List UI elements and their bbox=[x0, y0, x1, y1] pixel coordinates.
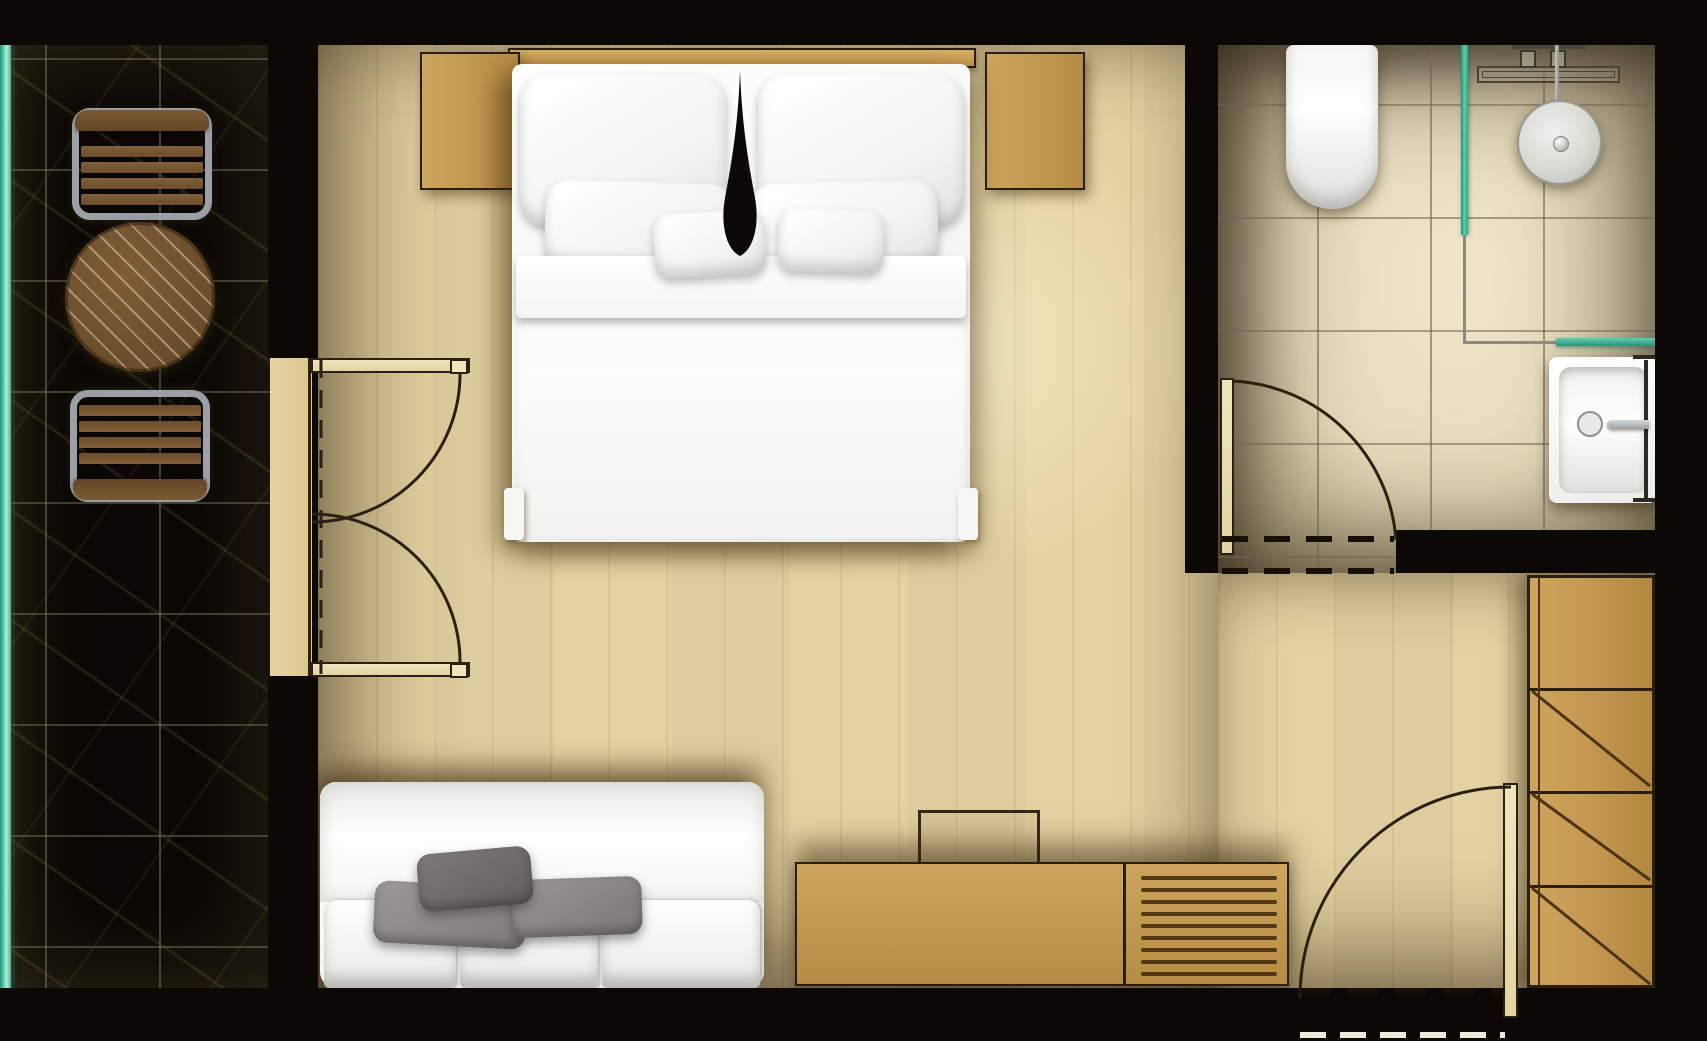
sink-mount-line bbox=[1644, 360, 1648, 500]
shower-arm bbox=[1555, 45, 1559, 105]
door-hinge bbox=[450, 359, 468, 374]
nightstand-left bbox=[420, 52, 520, 190]
console-drawer-slat bbox=[1141, 876, 1277, 880]
console-drawer-slat bbox=[1141, 936, 1277, 940]
shower-linear-drain bbox=[1477, 66, 1620, 83]
shower-valve bbox=[1520, 50, 1536, 68]
sink-bracket bbox=[1633, 498, 1655, 502]
wardrobe-shelf-divider bbox=[1530, 791, 1652, 794]
bed-pillow-small-right bbox=[777, 208, 885, 274]
floor-plan-canvas bbox=[0, 0, 1707, 1041]
tv bbox=[918, 810, 1040, 865]
chair-slat bbox=[81, 146, 203, 157]
sofa bbox=[320, 782, 764, 988]
wardrobe bbox=[1527, 575, 1655, 988]
washbasin-drain bbox=[1577, 411, 1603, 437]
sink-bracket bbox=[1633, 355, 1655, 359]
console-drawer-slat bbox=[1141, 888, 1277, 892]
french-door-sill bbox=[270, 358, 312, 676]
shower-head bbox=[1517, 100, 1602, 185]
bathroom-door-leaf bbox=[1220, 378, 1234, 555]
wall-bathroom-bottom bbox=[1396, 530, 1657, 573]
media-console bbox=[795, 862, 1289, 986]
sofa-pillow-dark bbox=[416, 845, 535, 913]
door-hinge bbox=[450, 663, 468, 678]
chair-slat bbox=[81, 178, 203, 189]
toilet bbox=[1286, 45, 1378, 209]
shower-head-nozzle bbox=[1553, 136, 1569, 152]
chair-back-bar bbox=[75, 110, 209, 131]
bed-foot-left bbox=[504, 488, 524, 540]
french-door-leaf-top bbox=[311, 358, 470, 373]
console-drawer-slat bbox=[1141, 948, 1277, 952]
shower-partition-line bbox=[1463, 235, 1466, 343]
chair-slat bbox=[79, 437, 201, 448]
french-door-frame-line bbox=[308, 358, 311, 676]
wall-right bbox=[1655, 0, 1707, 1041]
sink-faucet bbox=[1607, 420, 1649, 429]
round-patio-table bbox=[65, 222, 215, 372]
chair-back-bar bbox=[73, 479, 207, 500]
shower-curb-line bbox=[1463, 341, 1558, 344]
wall-top bbox=[0, 0, 1707, 45]
glass-shelf bbox=[1556, 338, 1655, 346]
lounge-chair-top bbox=[72, 108, 212, 220]
wall-bottom-left bbox=[0, 988, 1298, 1041]
bed-foot-right bbox=[958, 488, 978, 540]
washbasin bbox=[1549, 357, 1657, 503]
wardrobe-shelf-divider bbox=[1530, 885, 1652, 888]
chair-slat bbox=[79, 421, 201, 432]
wall-balcony-lower bbox=[268, 676, 318, 1041]
double-bed bbox=[512, 64, 970, 542]
balcony-glass-railing bbox=[0, 45, 11, 988]
nightstand-right bbox=[985, 52, 1085, 190]
wall-balcony-upper bbox=[268, 45, 318, 358]
console-drawer-slat bbox=[1141, 972, 1277, 976]
shower-valve-bar bbox=[1512, 45, 1586, 49]
french-door-leaf-bottom bbox=[311, 662, 470, 677]
chair-slat bbox=[79, 453, 201, 464]
console-drawer-slat bbox=[1141, 912, 1277, 916]
console-drawer-slat bbox=[1141, 900, 1277, 904]
lounge-chair-bottom bbox=[70, 390, 210, 502]
entry-door-leaf bbox=[1503, 783, 1518, 1018]
chair-slat bbox=[81, 162, 203, 173]
chair-slat bbox=[79, 405, 201, 416]
bed-pillow-small-left bbox=[652, 209, 767, 279]
shower-glass-partition bbox=[1461, 45, 1468, 235]
console-divider bbox=[1123, 864, 1126, 984]
washbasin-inner bbox=[1559, 367, 1647, 493]
wardrobe-shelf-divider bbox=[1530, 688, 1652, 691]
entry-door-gap bbox=[1298, 988, 1503, 1041]
console-drawer-slat bbox=[1141, 960, 1277, 964]
chair-slat bbox=[81, 194, 203, 205]
console-drawer-slat bbox=[1141, 924, 1277, 928]
wall-bathroom-left bbox=[1185, 45, 1218, 573]
